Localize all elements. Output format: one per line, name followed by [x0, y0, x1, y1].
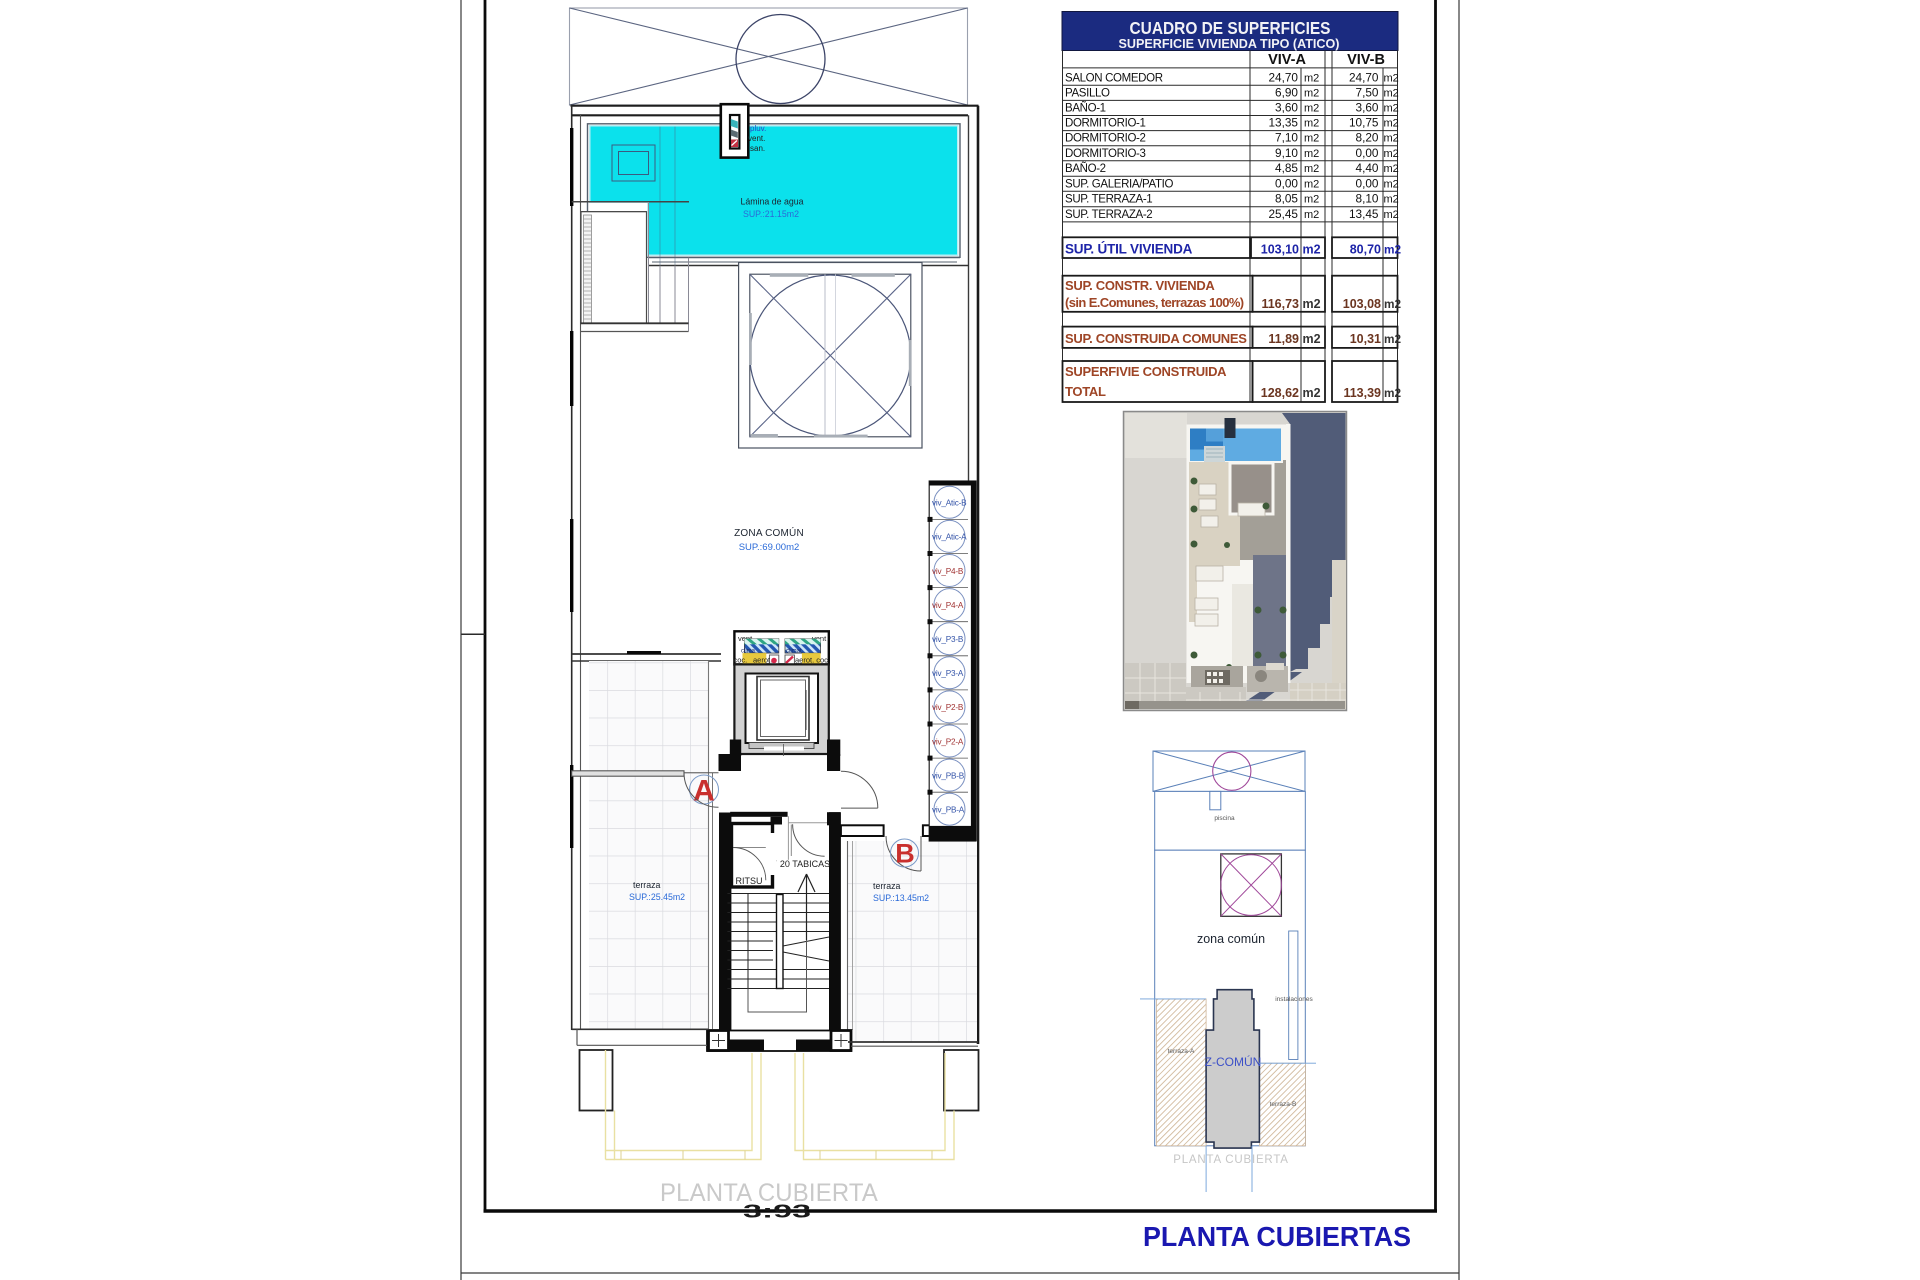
svg-text:m2: m2	[1384, 118, 1399, 130]
svg-text:san.: san.	[750, 144, 765, 153]
svg-text:m2: m2	[1304, 209, 1319, 221]
svg-text:24,70: 24,70	[1349, 70, 1379, 84]
svg-text:DORMITORIO-1: DORMITORIO-1	[1065, 118, 1146, 130]
svg-text:viv_P4-B: viv_P4-B	[932, 567, 964, 576]
svg-text:VIV-A: VIV-A	[1268, 52, 1306, 68]
svg-text:viv_P2-B: viv_P2-B	[932, 703, 964, 712]
svg-text:103,08: 103,08	[1343, 297, 1381, 311]
svg-text:116,73: 116,73	[1261, 297, 1299, 311]
svg-text:13,35: 13,35	[1268, 116, 1298, 130]
svg-text:4,40: 4,40	[1356, 161, 1379, 175]
svg-text:24,70: 24,70	[1268, 70, 1298, 84]
svg-text:8,10: 8,10	[1356, 192, 1379, 206]
svg-text:SUP. GALERIA/PATIO: SUP. GALERIA/PATIO	[1065, 178, 1174, 190]
svg-text:Lámina de agua: Lámina de agua	[740, 197, 803, 207]
svg-text:BAÑO-2: BAÑO-2	[1065, 162, 1106, 175]
svg-text:aerot.: aerot.	[753, 656, 772, 665]
svg-text:terraza-B: terraza-B	[1270, 1101, 1297, 1108]
svg-text:m2: m2	[1384, 194, 1399, 206]
svg-text:m2: m2	[1304, 178, 1319, 190]
svg-text:RITSU: RITSU	[736, 876, 763, 886]
svg-text:m2: m2	[1384, 103, 1399, 115]
svg-text:m2: m2	[1384, 163, 1399, 175]
svg-text:10,31: 10,31	[1350, 332, 1381, 346]
svg-text:viv_PB-B: viv_PB-B	[932, 771, 965, 780]
svg-text:piscina: piscina	[1214, 815, 1235, 822]
svg-text:m2: m2	[1303, 243, 1321, 257]
svg-text:m2: m2	[1303, 386, 1321, 400]
svg-text:m2: m2	[1304, 163, 1319, 175]
svg-text:CUADRO DE SUPERFICIES: CUADRO DE SUPERFICIES	[1130, 18, 1331, 38]
svg-text:climat.: climat.	[786, 649, 804, 655]
svg-text:SUPERFICIE VIVIENDA TIPO (ATI: SUPERFICIE VIVIENDA TIPO (ATICO)	[1119, 37, 1340, 51]
svg-text:SUP.:69.00m2: SUP.:69.00m2	[739, 542, 800, 553]
svg-text:viv_P2-A: viv_P2-A	[932, 737, 964, 746]
svg-text:m2: m2	[1304, 103, 1319, 115]
svg-text:SUP.:21.15m2: SUP.:21.15m2	[743, 209, 799, 219]
svg-text:SUP. TERRAZA-2: SUP. TERRAZA-2	[1065, 209, 1152, 221]
svg-text:coc.: coc.	[734, 656, 748, 665]
svg-text:0,00: 0,00	[1356, 146, 1379, 160]
svg-text:m2: m2	[1384, 72, 1399, 84]
svg-text:8,05: 8,05	[1275, 192, 1298, 206]
svg-text:SUP.:13.45m2: SUP.:13.45m2	[873, 893, 929, 903]
svg-text:SUP. TERRAZA-1: SUP. TERRAZA-1	[1065, 194, 1152, 206]
svg-text:m2: m2	[1384, 87, 1399, 99]
svg-text:7,50: 7,50	[1356, 85, 1379, 99]
svg-text:(sin E.Comunes, terrazas 100%): (sin E.Comunes, terrazas 100%)	[1065, 295, 1244, 310]
svg-text:BAÑO-1: BAÑO-1	[1065, 102, 1106, 115]
svg-text:SUP.:25.45m2: SUP.:25.45m2	[629, 892, 685, 902]
svg-text:terraza: terraza	[633, 880, 660, 890]
svg-text:9,10: 9,10	[1275, 146, 1298, 160]
svg-text:viv_P3-B: viv_P3-B	[932, 635, 964, 644]
svg-text:instalaciones: instalaciones	[1275, 996, 1313, 1003]
svg-text:m2: m2	[1304, 133, 1319, 145]
svg-text:PLANTA CUBIERTAS: PLANTA CUBIERTAS	[1143, 1221, 1411, 1252]
svg-text:viv_PB-A: viv_PB-A	[932, 806, 965, 815]
svg-text:SUPERFIVIE CONSTRUIDA: SUPERFIVIE CONSTRUIDA	[1065, 364, 1227, 379]
svg-text:A: A	[693, 775, 715, 808]
svg-text:3:93: 3:93	[743, 1202, 811, 1222]
svg-text:VIV-B: VIV-B	[1347, 52, 1385, 68]
svg-text:m2: m2	[1303, 297, 1321, 311]
svg-text:m2: m2	[1304, 194, 1319, 206]
svg-text:20 TABICAS: 20 TABICAS	[780, 859, 830, 869]
svg-text:3,60: 3,60	[1275, 101, 1298, 115]
svg-text:103,10: 103,10	[1261, 243, 1299, 257]
svg-text:m2: m2	[1303, 332, 1321, 346]
svg-text:m2: m2	[1304, 118, 1319, 130]
svg-text:B: B	[895, 839, 915, 869]
svg-text:13,45: 13,45	[1349, 207, 1379, 221]
svg-text:m2: m2	[1384, 209, 1399, 221]
svg-text:m2: m2	[1384, 386, 1401, 400]
svg-text:terraza: terraza	[873, 881, 900, 891]
svg-text:viv_Atic-B: viv_Atic-B	[932, 499, 967, 508]
svg-text:viv_P4-A: viv_P4-A	[932, 601, 964, 610]
svg-text:viv_Atic-A: viv_Atic-A	[932, 533, 967, 542]
svg-text:80,70: 80,70	[1350, 243, 1381, 257]
svg-text:Z-COMÚN: Z-COMÚN	[1205, 1054, 1262, 1069]
svg-text:m2: m2	[1384, 243, 1401, 257]
svg-text:m2: m2	[1304, 87, 1319, 99]
svg-text:8,20: 8,20	[1356, 131, 1379, 145]
svg-text:3,60: 3,60	[1356, 101, 1379, 115]
svg-text:m2: m2	[1304, 148, 1319, 160]
svg-text:128,62: 128,62	[1261, 386, 1299, 400]
svg-text:10,75: 10,75	[1349, 116, 1379, 130]
svg-text:25,45: 25,45	[1268, 207, 1298, 221]
svg-text:aerot. coc.: aerot. coc.	[795, 656, 830, 665]
svg-text:TOTAL: TOTAL	[1065, 384, 1106, 399]
svg-text:6,90: 6,90	[1275, 85, 1298, 99]
svg-text:PLANTA CUBIERTA: PLANTA CUBIERTA	[1173, 1154, 1289, 1166]
svg-text:pluv.: pluv.	[750, 124, 766, 133]
svg-text:4,85: 4,85	[1275, 161, 1298, 175]
svg-text:7,10: 7,10	[1275, 131, 1298, 145]
svg-text:m2: m2	[1384, 178, 1399, 190]
svg-text:m2: m2	[1384, 332, 1401, 346]
svg-text:vent.: vent.	[748, 134, 765, 143]
svg-text:SALON COMEDOR: SALON COMEDOR	[1065, 72, 1163, 84]
svg-text:0,00: 0,00	[1275, 176, 1298, 190]
svg-text:m2: m2	[1384, 133, 1399, 145]
svg-text:ZONA COMÚN: ZONA COMÚN	[734, 526, 804, 539]
svg-text:SUP. CONSTR. VIVIENDA: SUP. CONSTR. VIVIENDA	[1065, 278, 1215, 293]
svg-text:m2: m2	[1384, 297, 1401, 311]
svg-text:terraza-A: terraza-A	[1168, 1048, 1195, 1055]
svg-text:DORMITORIO-2: DORMITORIO-2	[1065, 133, 1146, 145]
svg-text:SUP. ÚTIL VIVIENDA: SUP. ÚTIL VIVIENDA	[1065, 242, 1193, 257]
svg-text:DORMITORIO-3: DORMITORIO-3	[1065, 148, 1146, 160]
svg-text:zona común: zona común	[1197, 932, 1265, 946]
svg-text:m2: m2	[1304, 72, 1319, 84]
svg-text:113,39: 113,39	[1343, 386, 1381, 400]
svg-text:11,89: 11,89	[1268, 332, 1299, 346]
svg-text:viv_P3-A: viv_P3-A	[932, 669, 964, 678]
svg-text:PASILLO: PASILLO	[1065, 87, 1110, 99]
svg-text:0,00: 0,00	[1356, 176, 1379, 190]
svg-text:m2: m2	[1384, 148, 1399, 160]
svg-text:SUP. CONSTRUIDA COMUNES: SUP. CONSTRUIDA COMUNES	[1065, 331, 1247, 346]
